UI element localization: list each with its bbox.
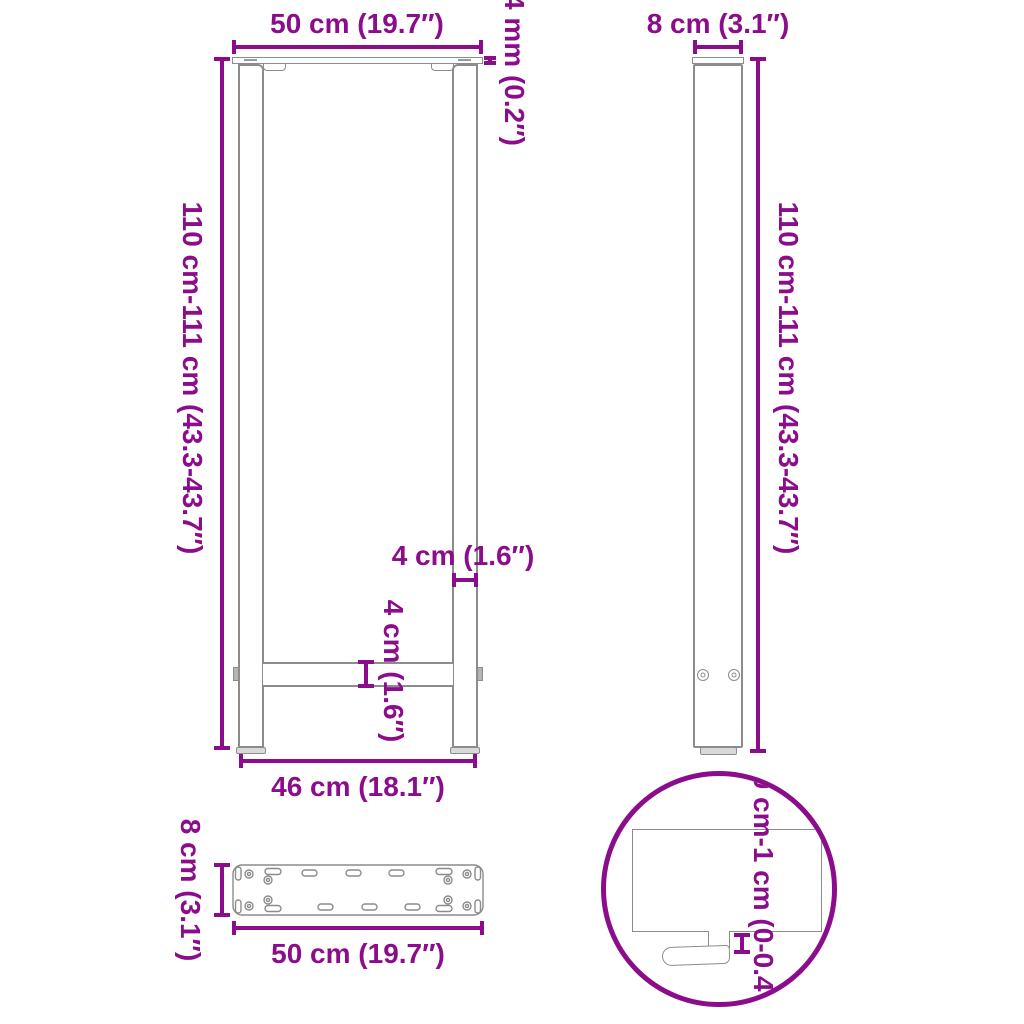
front-top-width-dimline (232, 45, 483, 49)
plate-slot (362, 904, 377, 910)
plate-slot (265, 869, 281, 875)
front-height-dimline (220, 57, 224, 750)
front-foot-right (450, 747, 480, 754)
front-foot-left (236, 747, 266, 754)
front-top-width-label: 50 cm (19.7″) (270, 10, 444, 38)
plate-width-label: 50 cm (19.7″) (271, 940, 445, 968)
front-plate-slot-left (244, 59, 257, 61)
side-top-width-label: 8 cm (3.1″) (647, 10, 790, 38)
plate-slot (302, 870, 317, 876)
front-height-label: 110 cm-111 cm (43.3-43.7″) (178, 202, 206, 555)
front-plate-tab-right (431, 63, 454, 71)
mounting-plate-drawing (232, 864, 484, 916)
side-foot (700, 747, 737, 755)
front-crossbar-weld-left (233, 667, 239, 681)
front-plate-slot-right (458, 59, 471, 61)
front-leg-width-label: 4 cm (1.6″) (392, 542, 535, 570)
front-plate-thickness-dimline (488, 56, 492, 65)
dimension-diagram: 50 cm (19.7″) 4 mm (0.2″) 110 cm-111 cm … (0, 0, 1024, 1024)
plate-slot (436, 869, 452, 875)
front-bottom-width-label: 46 cm (18.1″) (271, 773, 445, 801)
front-bottom-width-dimline (239, 759, 477, 763)
plate-depth-label: 8 cm (3.1″) (176, 819, 204, 962)
detail-adjustment-label: 0 cm-1 cm (0-0.4″) (749, 774, 777, 1007)
plate-slot (405, 904, 420, 910)
front-crossbar-height-dimline (364, 660, 368, 688)
side-leg (693, 64, 743, 748)
side-height-dimline (756, 57, 760, 753)
plate-slot (236, 900, 242, 913)
detail-leg (632, 829, 822, 932)
front-leg-width-dimline (452, 578, 478, 582)
front-plate-thickness-label: 4 mm (0.2″) (500, 0, 528, 146)
plate-slot (236, 867, 242, 880)
plate-width-dimline (232, 926, 484, 930)
front-crossbar-height-label: 4 cm (1.6″) (379, 600, 407, 743)
detail-adjustment-dimline (740, 933, 744, 954)
plate-slot (318, 904, 333, 910)
plate-slot (475, 900, 481, 913)
side-top-plate (692, 57, 744, 64)
plate-slot (436, 906, 452, 912)
plate-slot (265, 906, 281, 912)
front-crossbar-weld-right (477, 667, 483, 681)
front-leg-left (238, 64, 264, 748)
side-screw-right (728, 669, 740, 681)
front-plate-tab-left (263, 63, 286, 71)
plate-slot (389, 870, 404, 876)
side-top-width-dimline (693, 45, 743, 49)
side-height-label: 110 cm-111 cm (43.3-43.7″) (774, 202, 802, 555)
side-screw-left (697, 669, 709, 681)
plate-slot (475, 867, 481, 880)
plate-depth-dimline (220, 863, 224, 917)
plate-slot (346, 870, 361, 876)
detail-foot-pad (662, 945, 731, 966)
foot-detail-view: 0 cm-1 cm (0-0.4″) (601, 771, 837, 1007)
front-leg-right (452, 64, 478, 748)
